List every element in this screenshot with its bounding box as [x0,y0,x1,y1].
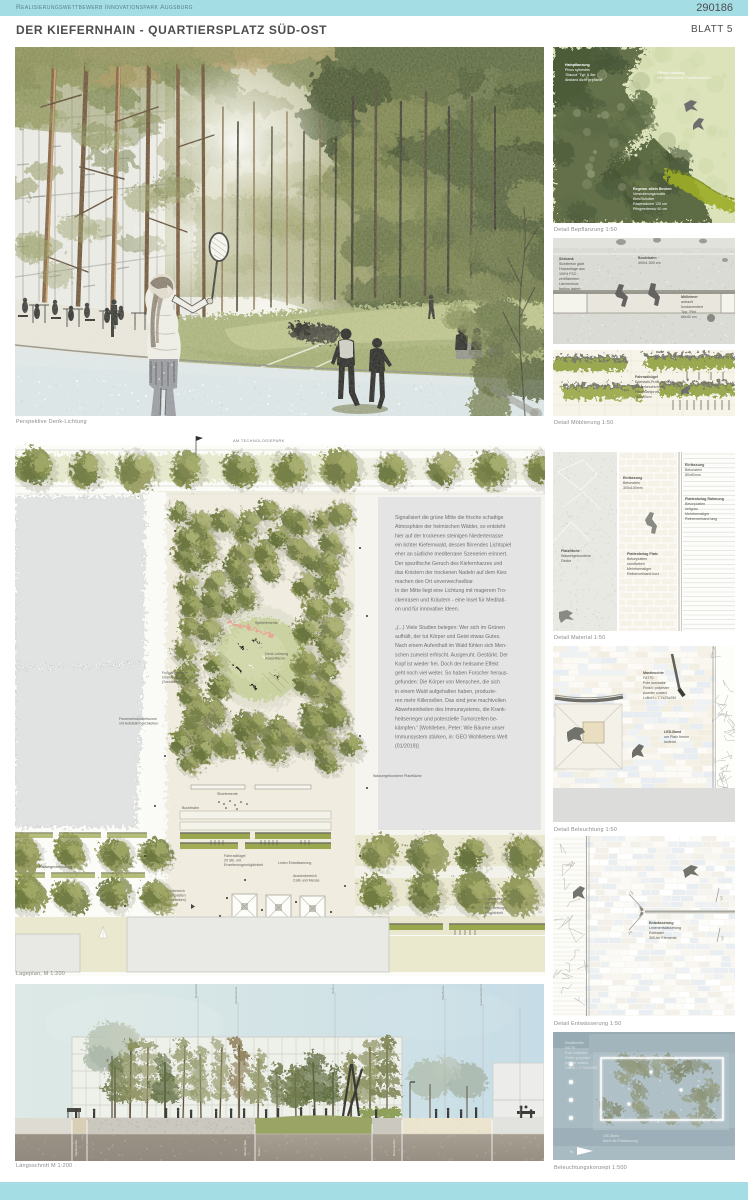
svg-text:In der Mitte liegt eine Lichtu: In der Mitte liegt eine Lichtung mit mag… [395,588,507,594]
svg-text:Wasser geb.: Wasser geb. [243,1139,247,1156]
svg-text:Pole luminaire: Pole luminaire [565,1051,587,1055]
svg-text:LxBxH = 7.7x23x250: LxBxH = 7.7x23x250 [565,1066,597,1070]
svg-text:Typ: 'Pint': Typ: 'Pint' [681,310,697,314]
svg-text:schen zumeist erfrischt. Ausge: schen zumeist erfrischt. Ausgeruht. Gest… [395,652,508,658]
svg-text:pulverbeschichtet: pulverbeschichtet [635,385,663,389]
svg-text:Mikroklimatischer Trockenstand: Mikroklimatischer Trockenstandort [657,76,712,80]
svg-text:Linien Entwässerung: Linien Entwässerung [278,861,311,865]
svg-text:Sichtbeton glatt: Sichtbeton glatt [559,262,584,266]
svg-text:das Knistern der trockenen Nad: das Knistern der trockenen Nadeln auf de… [395,570,507,576]
svg-text:ckenrasen und Kräutern - eine: ckenrasen und Kräutern - eine Insel für … [395,597,506,603]
svg-text:Rasensäume 120 cm: Rasensäume 120 cm [633,202,667,206]
svg-text:eher an südliche mediterrane S: eher an südliche mediterrane Szenerien e… [395,552,507,558]
svg-text:Erweiterungs-: Erweiterungs- [485,906,508,910]
svg-text:Atmosphäre der heimischen Wäld: Atmosphäre der heimischen Wälder, so ent… [395,524,506,530]
svg-text:Fußgängerzone: Fußgängerzone [162,671,187,675]
svg-text:FA770: FA770 [643,676,653,680]
svg-text:mit Aufstellmöglichkeiten: mit Aufstellmöglichkeiten [119,722,158,726]
svg-text:66x40 cm: 66x40 cm [681,315,697,319]
svg-text:aufhält, der tut Körper und Ge: aufhält, der tut Körper und Geist etwas … [395,634,501,640]
svg-text:farblos lasiert: farblos lasiert [559,287,580,291]
svg-text:in einem Wald aufgehalten habe: in einem Wald aufgehalten haben, produzi… [395,689,497,695]
svg-text:Betonplatten: Betonplatten [627,557,647,561]
svg-text:Platzfläche: Platzfläche [441,985,445,1000]
svg-text:Band als Platzfassung: Band als Platzfassung [603,1139,638,1143]
svg-text:Lärchenholz: Lärchenholz [559,282,579,286]
svg-text:sandfarben: sandfarben [627,562,645,566]
svg-text:antrazit: antrazit [681,300,693,304]
svg-text:Versickerungsmulde: Versickerungsmulde [633,192,665,196]
svg-text:Sitzelemente: Sitzelemente [217,792,238,796]
svg-text:400x1.500 cm: 400x1.500 cm [638,261,661,265]
svg-text:Pole luminaire: Pole luminaire [643,681,666,685]
svg-text:2%: 2% [720,935,725,940]
svg-text:on und für innovative Ideen.: on und für innovative Ideen. [395,607,459,613]
svg-text:heitserreger und potenzielle T: heitserreger und potenzielle Tumorzellen… [395,716,498,722]
svg-text:Wassergebundene: Wassergebundene [561,554,591,558]
svg-text:Edelstahl: Edelstahl [649,931,664,935]
svg-text:Der spezifische Geruch des Kie: Der spezifische Geruch des Kiefernharzes… [395,561,502,567]
svg-text:Reihenverband kurz: Reihenverband kurz [627,572,659,576]
svg-text:LxBxH = 7.7x23x250: LxBxH = 7.7x23x250 [643,696,676,700]
svg-text:2%: 2% [719,895,724,900]
svg-text:Boulebahn: Boulebahn [194,984,198,998]
svg-text:Rasen: Rasen [257,1147,261,1156]
svg-text:Boulebahn: Boulebahn [182,806,199,810]
svg-text:Pinus sylvestris: Pinus sylvestris [565,68,590,72]
svg-text:Sitzelemente: Sitzelemente [234,986,238,1004]
svg-text:Aussenbereich Café: Aussenbereich Café [479,984,483,1006]
svg-text:Kopf ist wieder frei. Doch der: Kopf ist wieder frei. Doch der heilsame … [395,661,499,667]
svg-text:Hainpflanzung: Hainpflanzung [565,63,590,67]
svg-text:180x90cm: 180x90cm [635,395,652,399]
svg-text:„(...) Viele Studien belegen:: „(...) Viele Studien belegen: Wer sich i… [395,625,505,631]
svg-text:Nach einem Aufenthalt im Wald: Nach einem Aufenthalt im Wald fühlen sic… [395,643,507,649]
svg-text:(01/2019)]: (01/2019)] [395,744,419,750]
svg-text:Betonstein: Betonstein [623,481,640,485]
svg-text:powder coated: powder coated [643,691,667,695]
svg-text:kämpfen.“ [Wohlleben, Peter: W: kämpfen.“ [Wohlleben, Peter: Wie Bäume u… [395,725,505,731]
svg-text:LED-Band: LED-Band [603,1134,619,1138]
svg-text:FA770: FA770 [565,1046,575,1050]
svg-text:Denk-Lichtung: Denk-Lichtung [331,984,335,994]
svg-text:ren mehr Killerzellen. Das sin: ren mehr Killerzellen. Das sind jene mac… [395,698,506,704]
svg-text:Flachstahlprofil: Flachstahlprofil [635,390,659,394]
svg-text:Signalisiert die grüne Mitte d: Signalisiert die grüne Mitte die frische… [395,515,504,521]
svg-text:Café und Mensa: Café und Mensa [293,879,319,883]
svg-text:Feuerwehranfahrtszone: Feuerwehranfahrtszone [119,717,157,721]
svg-text:Fahrradbügel: Fahrradbügel [485,897,507,901]
svg-text:Betonstein: Betonstein [685,468,702,472]
svg-text:Fahrradbügel: Fahrradbügel [224,854,246,858]
svg-text:fundamentiert: fundamentiert [681,305,703,309]
svg-text:300x100mm: 300x100mm [623,486,643,490]
svg-text:zertifiziertem: zertifiziertem [559,277,579,281]
svg-text:Plattenbelag Rahmung: Plattenbelag Rahmung [685,497,724,501]
svg-text:Finish: polyester: Finish: polyester [565,1056,591,1060]
svg-text:Offene Lichtung: Offene Lichtung [657,71,685,75]
svg-text:Einfassung: Einfassung [685,463,704,467]
svg-text:Mülleimer: Mülleimer [681,295,698,299]
svg-text:Radwegeverbindung: Radwegeverbindung [39,865,72,869]
svg-text:Kies/Schotter: Kies/Schotter [633,197,655,201]
svg-text:Regenw. allein Becken: Regenw. allein Becken [633,187,672,191]
svg-text:möglichkeit: möglichkeit [485,911,503,915]
svg-text:Boulebahn: Boulebahn [638,256,657,260]
svg-text:hier auf der trockenen steinig: hier auf der trockenen steinigen Niedert… [395,533,503,539]
svg-text:Erweiterungsmöglichkeit: Erweiterungsmöglichkeit [224,863,263,867]
svg-text:Sitzbank: Sitzbank [559,257,574,261]
svg-text:Linienentwässerung: Linienentwässerung [649,926,681,930]
svg-text:Abstand dicht gepflanzt: Abstand dicht gepflanzt [565,78,602,82]
svg-text:Granitplatten: Granitplatten [162,676,183,680]
svg-text:LED-Band: LED-Band [664,730,681,734]
svg-text:hellgrau: hellgrau [685,507,698,511]
svg-text:Mastleuchte: Mastleuchte [565,1041,584,1045]
svg-text:ein lichter Kiefernwald, desse: ein lichter Kiefernwald, dessen flirrend… [395,543,511,549]
svg-text:20 Stk. mit: 20 Stk. mit [485,902,502,906]
svg-text:Reihenverband lang: Reihenverband lang [685,517,717,521]
svg-text:Einfassung: Einfassung [623,476,642,480]
svg-text:Holzauflage aus: Holzauflage aus [559,267,585,271]
svg-text:300-ter Elemente: 300-ter Elemente [649,936,677,940]
svg-text:Mastleuchte: Mastleuchte [74,1139,78,1156]
svg-text:Pflegeextensiv 50 cm: Pflegeextensiv 50 cm [633,207,667,211]
svg-text:laufend: laufend [664,740,676,744]
svg-text:Abwehreinheiten des Immunsyste: Abwehreinheiten des Immunsystems, die Kr… [395,707,507,713]
svg-text:AM TECHNOLOGIEPARK: AM TECHNOLOGIEPARK [233,439,285,443]
svg-text:Fahrradbügel: Fahrradbügel [635,375,658,379]
svg-text:Mehrformatiger: Mehrformatiger [685,512,710,516]
svg-text:geht noch viel weiter. So habe: geht noch viel weiter. So haben Forscher… [395,671,508,677]
svg-text:Mastleuchte: Mastleuchte [643,671,664,675]
svg-text:powder coated: powder coated [565,1061,588,1065]
svg-text:Wassergebundene Platzfläche: Wassergebundene Platzfläche [373,774,422,778]
svg-text:Betonplatten: Betonplatten [392,1139,396,1156]
svg-text:um Platz herum: um Platz herum [664,735,689,739]
svg-text:Entwässerung: Entwässerung [649,921,674,925]
svg-text:Aussenbereich: Aussenbereich [293,874,317,878]
svg-text:Rasenfläche: Rasenfläche [265,657,285,661]
svg-text:gefunden: Die Körper von Mensc: gefunden: Die Körper von Menschen, die s… [395,680,500,686]
svg-text:100% FSC: 100% FSC [559,272,577,276]
svg-text:20 Stk. mit: 20 Stk. mit [224,859,241,863]
svg-text:N: N [570,1149,573,1154]
svg-text:Betonplatten: Betonplatten [685,502,705,506]
svg-text:(Sandfarben): (Sandfarben) [162,680,183,684]
svg-text:Decke: Decke [561,559,571,563]
svg-text:Plattenbelag Platz: Plattenbelag Platz [627,552,658,556]
svg-text:Mehrformatiger: Mehrformatiger [627,567,652,571]
svg-text:Denk-Lichtung: Denk-Lichtung [265,652,288,656]
svg-text:80x80mm: 80x80mm [685,473,701,477]
svg-text:Platzfläche: Platzfläche [561,549,580,553]
svg-text:Spielelemente: Spielelemente [255,621,278,625]
svg-text:Immunsystem stärken, in: GEO W: Immunsystem stärken, in: GEO Wohllebens … [395,735,508,741]
svg-text:machen den Ort unverwechselbar: machen den Ort unverwechselbar. [395,579,474,585]
svg-text:'Glauca' 'Typ' & 8m: 'Glauca' 'Typ' & 8m [565,73,595,77]
svg-text:Edelstahl-Profil, antrazit: Edelstahl-Profil, antrazit [635,380,673,384]
svg-text:Finish: polyester: Finish: polyester [643,686,670,690]
